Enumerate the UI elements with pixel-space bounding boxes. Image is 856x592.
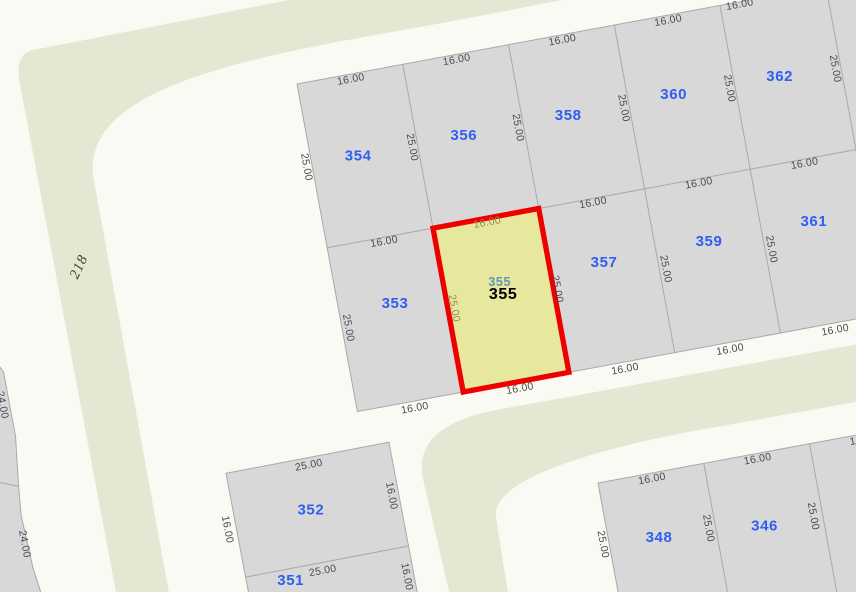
svg-text:360: 360 xyxy=(660,86,687,103)
svg-text:361: 361 xyxy=(800,213,827,230)
svg-text:355: 355 xyxy=(489,286,518,303)
svg-text:346: 346 xyxy=(751,518,778,535)
svg-text:358: 358 xyxy=(555,107,582,124)
svg-text:357: 357 xyxy=(591,254,618,271)
svg-text:348: 348 xyxy=(646,529,673,546)
svg-text:359: 359 xyxy=(696,233,723,250)
svg-text:356: 356 xyxy=(450,127,477,144)
svg-text:352: 352 xyxy=(297,502,324,519)
svg-text:362: 362 xyxy=(766,68,793,85)
svg-text:351: 351 xyxy=(277,572,304,589)
svg-text:353: 353 xyxy=(382,295,409,312)
svg-text:354: 354 xyxy=(345,148,372,165)
